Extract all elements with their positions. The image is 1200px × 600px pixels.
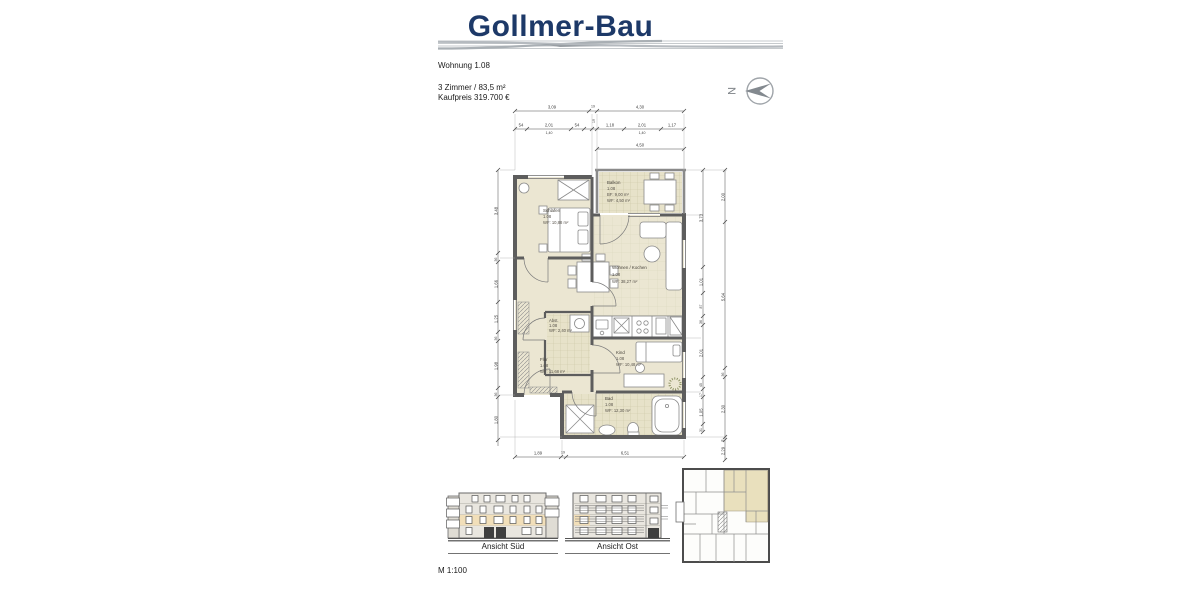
dim-top: 1,40 [546, 131, 553, 135]
north-needle-icon [745, 84, 771, 99]
dim-left: 1,66 [494, 279, 499, 288]
dim-top: 19 [591, 105, 595, 109]
dim-top: 54 [575, 123, 580, 128]
dim-top: 4,50 [636, 143, 645, 148]
dim-bottom: 19 [561, 451, 565, 455]
elevation-south-label: Ansicht Süd [448, 542, 558, 551]
schlafen-area: WF: 10,88 m² [543, 220, 569, 225]
dim-right-outer: 8 [721, 439, 725, 441]
dim-top: 3,09 [548, 105, 557, 110]
schlafen-name: Schlafen [543, 208, 561, 213]
dim-right: 17 [699, 393, 703, 397]
balkon-name: Balkon [607, 180, 621, 185]
dim-bottom: 6,51 [621, 451, 630, 456]
company-logo-text: Gollmer-Bau [438, 10, 683, 44]
apartment-number: Wohnung 1.08 [438, 61, 510, 71]
dim-left: 3,48 [494, 206, 499, 215]
north-arrow: N [725, 78, 773, 104]
dim-left: 36 [494, 337, 498, 341]
balkon-bf: BF: 9,00 m² [607, 192, 629, 197]
dim-right-outer: 2,00 [721, 192, 726, 201]
wohnen-name: Wohnen / Kochen [612, 265, 647, 270]
dim-right: 1,05 [699, 408, 704, 417]
north-letter: N [725, 87, 737, 95]
key-plan [676, 469, 769, 562]
dim-right: 87 [699, 305, 703, 309]
floorplan-sheet: N [0, 0, 1200, 600]
dim-left: 36 [494, 393, 498, 397]
dim-right: 2,01 [699, 348, 704, 357]
bad-name: Bad [605, 396, 613, 401]
dim-left: 36 [494, 258, 498, 262]
sheet-drawing: N [0, 0, 1200, 600]
dim-top: 1,17 [668, 123, 677, 128]
dim-right-outer: 5,64 [721, 292, 726, 301]
bad-area: WF: 12,30 m² [605, 408, 631, 413]
dim-bottom: 1,89 [534, 451, 543, 456]
dim-top: 2,01 [638, 123, 647, 128]
dim-right: 36 [699, 320, 703, 324]
flur-area: WF: 11,68 m² [540, 369, 566, 374]
kind-area: WF: 10,48 m² [616, 362, 642, 367]
dim-top: 54 [519, 123, 524, 128]
abstell-area: WF: 2,40 m² [549, 328, 573, 333]
dim-top: 1,40 [639, 131, 646, 135]
dim-left: 1,98 [494, 361, 499, 370]
balkon-wf: WF: 4,50 m² [607, 198, 631, 203]
balkon-nr: 1.08 [607, 186, 616, 191]
flur-nr: 1.08 [540, 363, 549, 368]
wohnen-area: WF: 38,27 m² [612, 279, 638, 284]
kind-nr: 1.08 [616, 356, 625, 361]
dim-right-outer: 36 [721, 373, 725, 377]
dim-top: 1,18 [606, 123, 615, 128]
bad-nr: 1.08 [605, 402, 614, 407]
dim-left: 1,80 [494, 415, 499, 424]
floor-plan: Schlafen 1.08 WF: 10,88 m² Balkon 1.08 B… [513, 170, 686, 439]
apartment-rooms-size: 3 Zimmer / 83,5 m² [438, 83, 510, 93]
dim-right: 1,01 [699, 277, 704, 286]
dim-left: 1,25 [494, 314, 499, 323]
dim-top: 19 [592, 119, 596, 123]
dim-right-outer: 2,30 [721, 404, 726, 413]
apartment-info: Wohnung 1.08 3 Zimmer / 83,5 m² Kaufprei… [438, 61, 510, 103]
elevation-east-label: Ansicht Ost [565, 542, 670, 551]
dim-right: 3,73 [699, 213, 704, 222]
dim-right-outer: 2,29 [721, 446, 726, 455]
dim-right: 31 [699, 428, 703, 432]
flur-name: Flur [540, 357, 548, 362]
dim-right: 45 [699, 383, 703, 387]
apartment-price: Kaufpreis 319.700 € [438, 93, 510, 103]
wohnen-nr: 1.08 [612, 272, 621, 277]
scale-label: M 1:100 [438, 566, 467, 575]
schlafen-nr: 1.08 [543, 214, 552, 219]
dim-top: 2,01 [545, 123, 554, 128]
kind-name: Kind [616, 350, 625, 355]
dim-top: 4,30 [636, 105, 645, 110]
